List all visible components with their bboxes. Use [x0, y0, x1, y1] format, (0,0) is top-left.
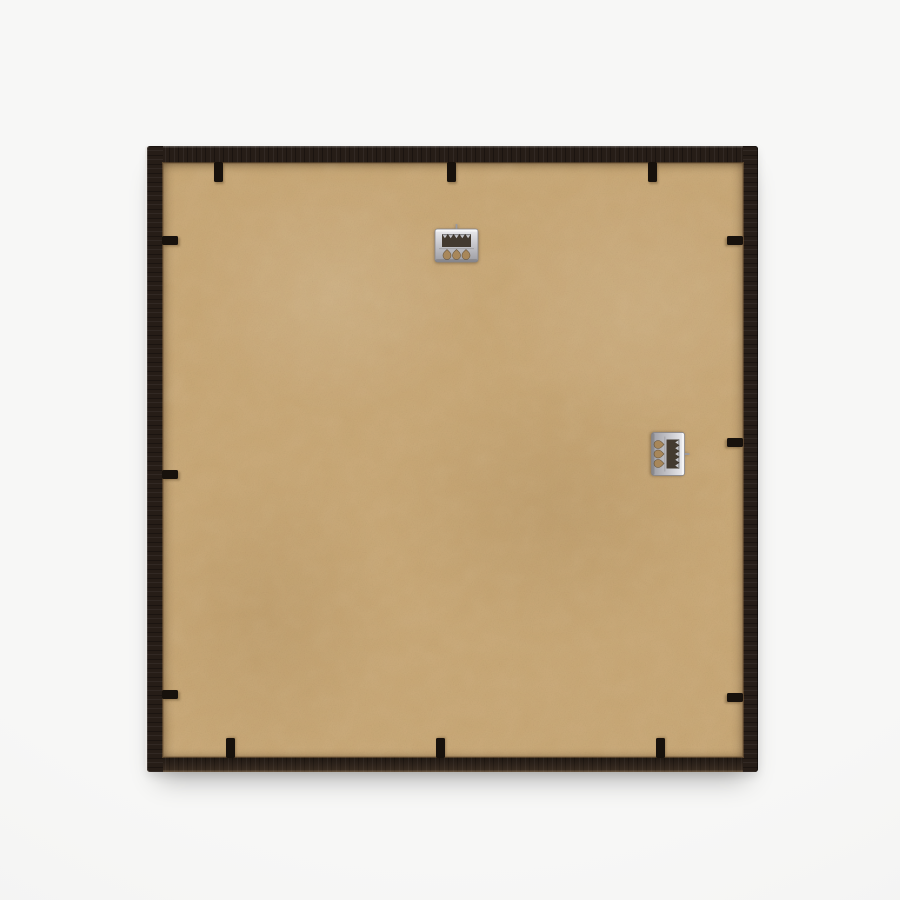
flex-tab-right: [727, 438, 743, 447]
flex-tab-bottom: [656, 738, 665, 758]
product-photo: [0, 0, 900, 900]
frame-bar-top: [147, 146, 758, 163]
frame-bar-right: [743, 146, 758, 772]
flex-tab-top: [214, 162, 223, 182]
flex-tab-right: [727, 693, 743, 702]
flex-tab-left: [162, 470, 178, 479]
flex-tab-bottom: [436, 738, 445, 758]
frame-bar-bottom: [147, 757, 758, 772]
flex-tab-right: [727, 236, 743, 245]
frame-bar-left: [147, 146, 163, 772]
flex-tab-left: [162, 236, 178, 245]
sawtooth-hanger-top-icon: [433, 224, 480, 266]
flex-tab-top: [447, 162, 456, 182]
sawtooth-hanger-right-icon: [647, 431, 689, 478]
flex-tab-left: [162, 690, 178, 699]
flex-tab-bottom: [226, 738, 235, 758]
flex-tab-top: [648, 162, 657, 182]
